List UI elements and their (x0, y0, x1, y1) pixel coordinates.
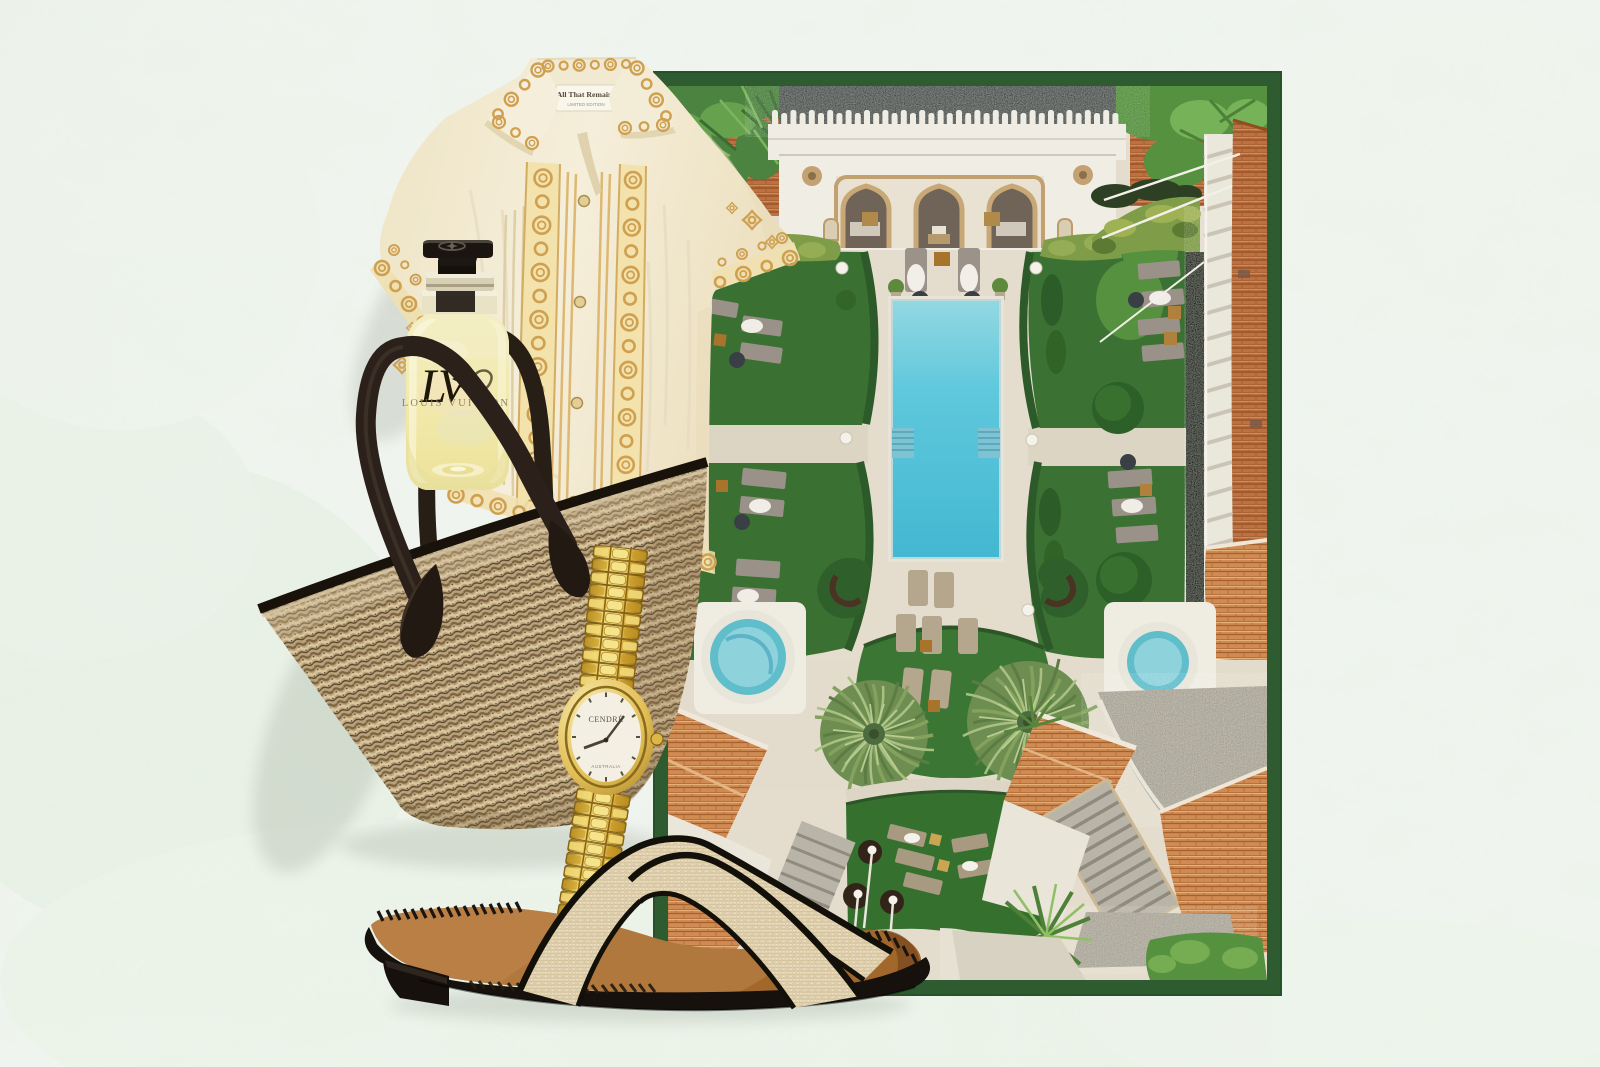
svg-text:All That Remains: All That Remains (557, 90, 616, 99)
svg-text:AUSTRALIA: AUSTRALIA (591, 764, 621, 769)
svg-text:LIMITED EDITION: LIMITED EDITION (567, 102, 604, 107)
